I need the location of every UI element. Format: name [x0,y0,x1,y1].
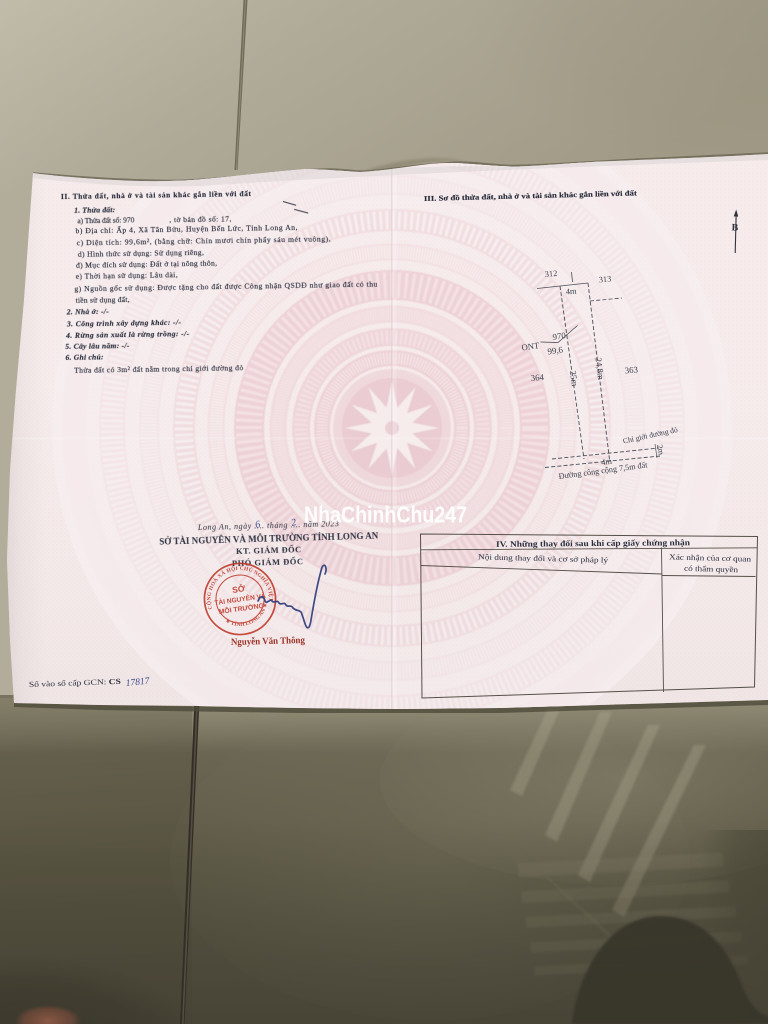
svg-text:363: 363 [624,364,639,375]
svg-text:364: 364 [530,372,545,383]
svg-text:6. Ghi chú:: 6. Ghi chú: [65,352,103,362]
svg-text:e) Thời hạn sử dụng: Lâu dài,: e) Thời hạn sử dụng: Lâu dài, [76,270,178,281]
svg-text:tiền sử dụng đất,: tiền sử dụng đất, [76,295,130,305]
svg-text:KT. GIÁM ĐỐC: KT. GIÁM ĐỐC [236,544,301,556]
svg-text:2. Nhà ở: -/-: 2. Nhà ở: -/- [66,307,110,317]
svg-text:NhaChinhChu247: NhaChinhChu247 [304,502,467,528]
svg-text:IV. Những thay đổi sau khi cấp: IV. Những thay đổi sau khi cấp giấy chứn… [496,538,690,549]
svg-text:Nguyễn Văn Thông: Nguyễn Văn Thông [231,635,305,648]
svg-text:có thẩm quyền: có thẩm quyền [684,564,738,574]
svg-text:313: 313 [598,274,611,284]
svg-text:3. Công trình xây dựng khác: -: 3. Công trình xây dựng khác: -/- [66,318,182,329]
svg-text:5. Cây lâu năm: -/-: 5. Cây lâu năm: -/- [65,341,130,351]
svg-text:25m: 25m [568,370,580,387]
svg-text:B: B [731,222,738,233]
svg-text:a) Thửa đất số: 970: a) Thửa đất số: 970 [77,215,134,225]
svg-text:4m: 4m [565,287,577,297]
svg-text:312: 312 [544,269,557,279]
svg-text:970: 970 [552,330,567,342]
svg-text:1. Thửa đất:: 1. Thửa đất: [74,205,115,215]
svg-text:SỞ: SỞ [231,582,246,595]
